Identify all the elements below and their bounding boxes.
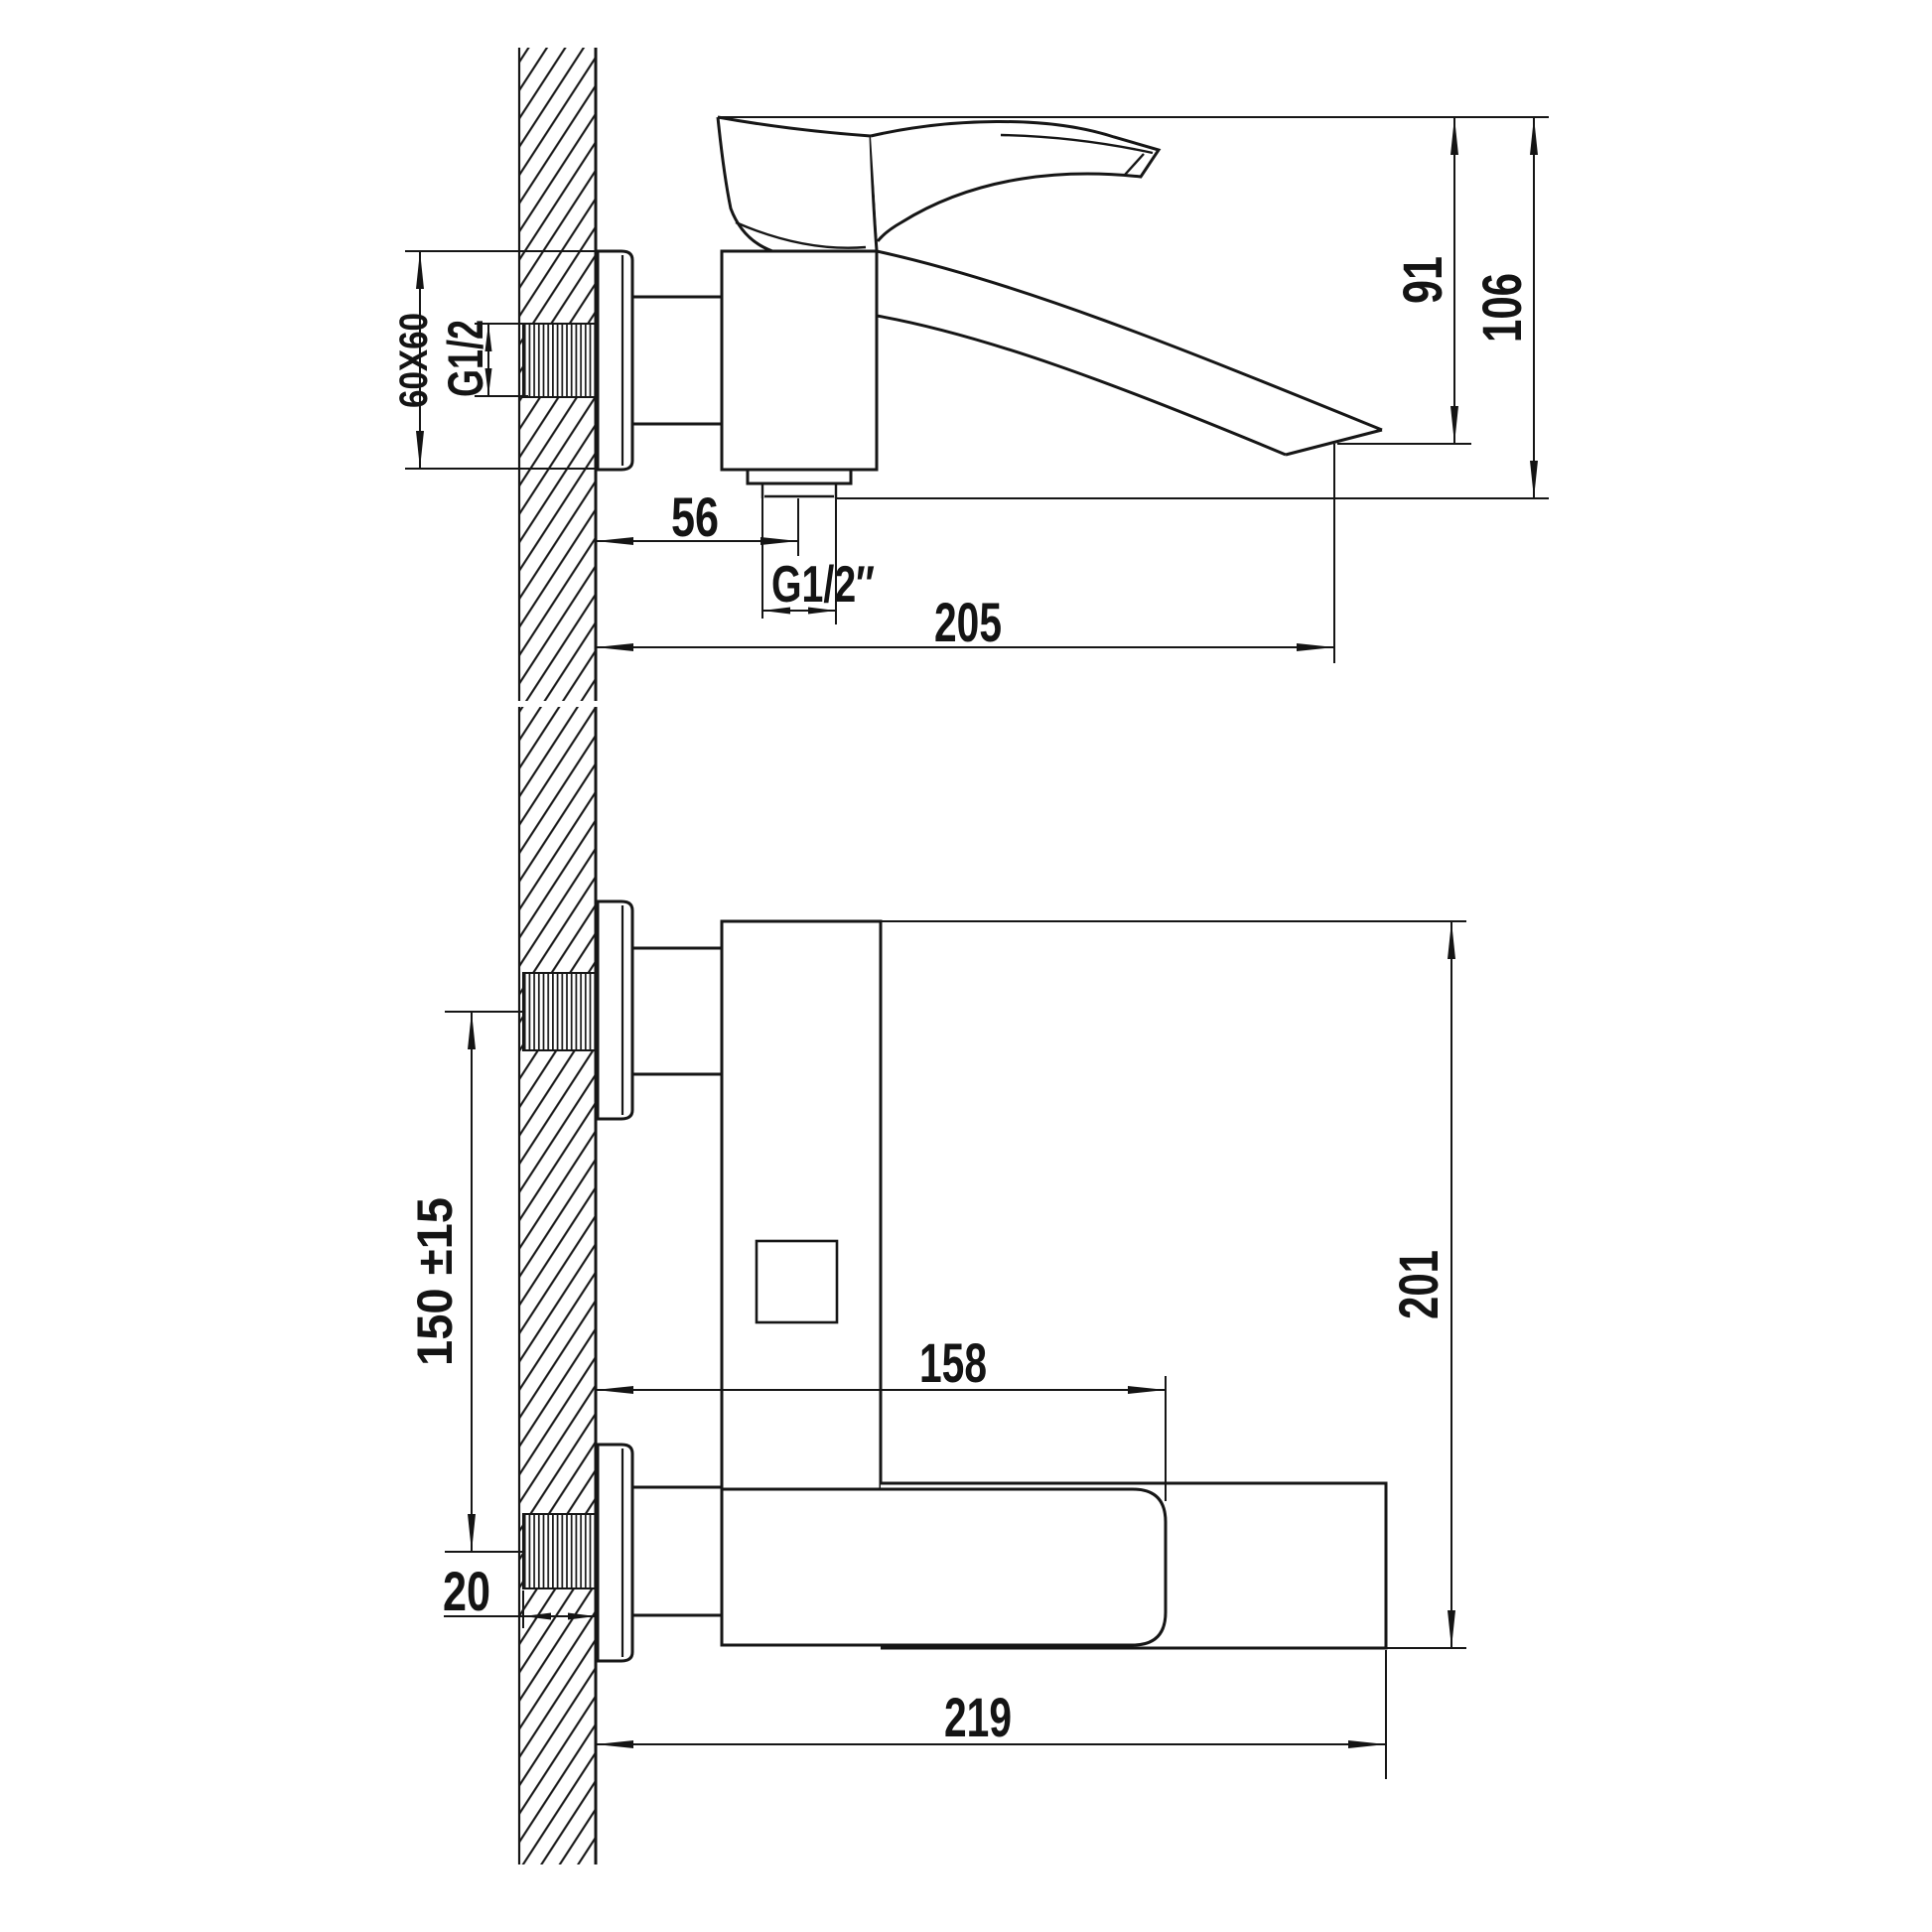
mounting-flange bbox=[598, 251, 632, 470]
upper-mounting-flange bbox=[598, 901, 632, 1119]
wall-hatch-plan bbox=[519, 707, 596, 1864]
dim-label-thread-length: 20 bbox=[443, 1560, 490, 1622]
dim-label-spout-height: 91 bbox=[1391, 256, 1453, 304]
drawing-page: 60X60 G1/2 56 G1/2″ 205 91 106 bbox=[0, 0, 1932, 1932]
upper-inlet-thread bbox=[523, 973, 596, 1050]
dim-label-inlet-thread: G1/2 bbox=[438, 320, 493, 397]
dim-label-outlet-offset: 56 bbox=[671, 485, 719, 548]
dim-label-body-length: 201 bbox=[1387, 1250, 1449, 1319]
dim-label-handle-reach: 158 bbox=[919, 1331, 987, 1394]
lower-mounting-flange bbox=[598, 1445, 632, 1661]
lower-inlet-thread bbox=[523, 1514, 596, 1588]
dim-label-outlet-thread: G1/2″ bbox=[771, 556, 875, 614]
dim-label-total-reach: 219 bbox=[944, 1686, 1012, 1748]
lever-handle-plan bbox=[722, 1489, 1166, 1645]
dim-label-inlet-spacing: 150 ±15 bbox=[407, 1197, 463, 1366]
faucet-body bbox=[722, 251, 877, 470]
inlet-thread bbox=[523, 324, 596, 397]
technical-drawing: 60X60 G1/2 56 G1/2″ 205 91 106 bbox=[0, 0, 1932, 1932]
dim-label-total-height: 106 bbox=[1470, 273, 1533, 343]
dim-label-flange-size: 60X60 bbox=[392, 313, 436, 408]
dim-label-reach: 205 bbox=[934, 591, 1002, 653]
